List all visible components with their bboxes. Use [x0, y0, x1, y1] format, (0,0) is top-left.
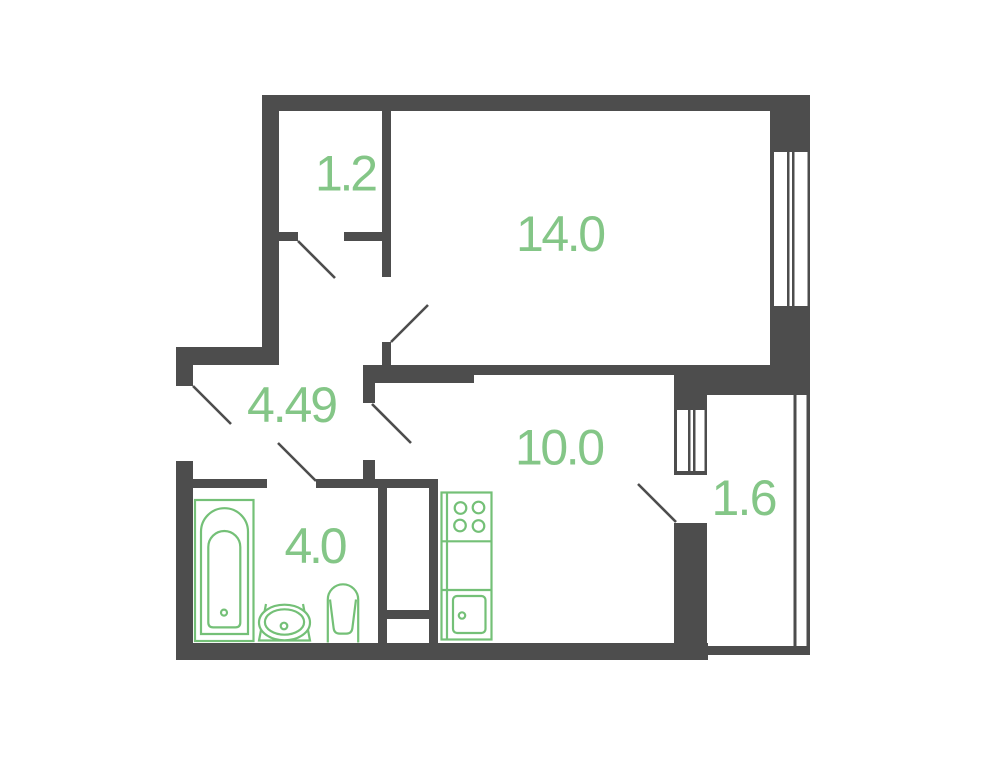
svg-text:1.6: 1.6	[712, 470, 778, 526]
svg-text:4.0: 4.0	[285, 518, 348, 574]
svg-text:1.2: 1.2	[315, 146, 378, 202]
svg-text:14.0: 14.0	[516, 206, 606, 262]
svg-text:4.49: 4.49	[247, 377, 338, 433]
svg-text:10.0: 10.0	[515, 420, 605, 476]
